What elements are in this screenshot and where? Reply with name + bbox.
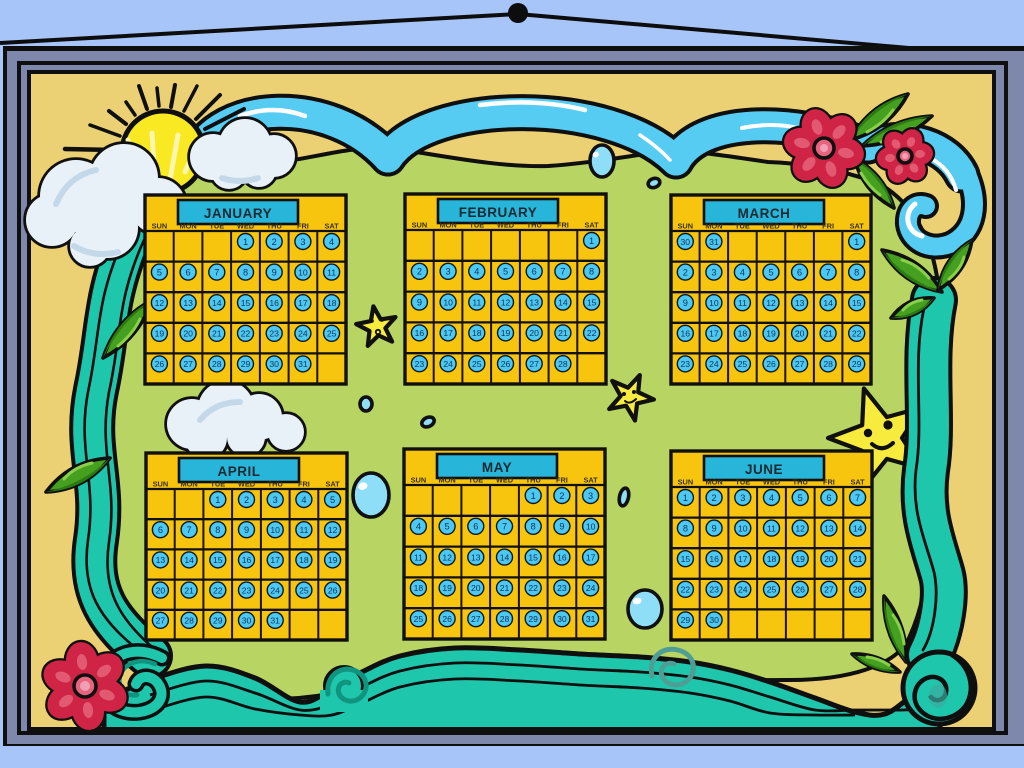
svg-text:13: 13 bbox=[183, 298, 193, 308]
svg-text:22: 22 bbox=[213, 585, 223, 595]
svg-text:23: 23 bbox=[709, 585, 719, 595]
svg-text:15: 15 bbox=[241, 298, 251, 308]
svg-text:28: 28 bbox=[184, 616, 194, 626]
svg-text:FEBRUARY: FEBRUARY bbox=[459, 205, 538, 220]
svg-text:6: 6 bbox=[473, 522, 478, 532]
svg-text:20: 20 bbox=[529, 328, 539, 338]
svg-text:THU: THU bbox=[526, 476, 541, 485]
svg-text:19: 19 bbox=[155, 329, 165, 339]
svg-text:9: 9 bbox=[417, 297, 422, 307]
svg-text:23: 23 bbox=[242, 585, 252, 595]
svg-text:12: 12 bbox=[795, 523, 805, 533]
svg-text:8: 8 bbox=[215, 525, 220, 535]
svg-text:27: 27 bbox=[183, 359, 193, 369]
svg-text:8: 8 bbox=[854, 267, 859, 277]
svg-text:29: 29 bbox=[528, 614, 538, 624]
svg-text:5: 5 bbox=[157, 267, 162, 277]
svg-text:4: 4 bbox=[329, 237, 334, 247]
svg-text:23: 23 bbox=[415, 359, 425, 369]
svg-text:17: 17 bbox=[443, 328, 453, 338]
svg-text:30: 30 bbox=[242, 616, 252, 626]
svg-text:22: 22 bbox=[587, 328, 597, 338]
svg-text:26: 26 bbox=[155, 359, 165, 369]
svg-text:9: 9 bbox=[244, 525, 249, 535]
svg-text:13: 13 bbox=[824, 523, 834, 533]
svg-text:SAT: SAT bbox=[583, 476, 598, 485]
svg-text:SUN: SUN bbox=[677, 222, 693, 231]
svg-text:5: 5 bbox=[330, 495, 335, 505]
svg-text:6: 6 bbox=[532, 267, 537, 277]
svg-text:26: 26 bbox=[328, 585, 338, 595]
svg-text:APRIL: APRIL bbox=[218, 464, 261, 479]
svg-text:12: 12 bbox=[155, 298, 165, 308]
svg-text:15: 15 bbox=[852, 298, 862, 308]
svg-text:WED: WED bbox=[497, 221, 515, 230]
svg-text:7: 7 bbox=[187, 525, 192, 535]
svg-text:27: 27 bbox=[529, 359, 539, 369]
svg-text:27: 27 bbox=[824, 585, 834, 595]
svg-text:FRI: FRI bbox=[557, 221, 569, 230]
svg-text:4: 4 bbox=[474, 267, 479, 277]
svg-text:3: 3 bbox=[588, 491, 593, 501]
svg-text:10: 10 bbox=[586, 522, 596, 532]
svg-text:6: 6 bbox=[797, 267, 802, 277]
svg-text:17: 17 bbox=[270, 555, 280, 565]
svg-text:11: 11 bbox=[738, 298, 747, 308]
svg-text:11: 11 bbox=[299, 525, 308, 535]
svg-text:21: 21 bbox=[558, 328, 568, 338]
svg-text:18: 18 bbox=[767, 554, 777, 564]
svg-text:18: 18 bbox=[414, 583, 424, 593]
svg-text:11: 11 bbox=[327, 267, 336, 277]
svg-text:SUN: SUN bbox=[152, 222, 168, 231]
svg-text:29: 29 bbox=[852, 359, 862, 369]
svg-text:7: 7 bbox=[502, 522, 507, 532]
svg-text:19: 19 bbox=[501, 328, 511, 338]
svg-text:31: 31 bbox=[586, 614, 596, 624]
svg-text:4: 4 bbox=[740, 267, 745, 277]
svg-text:8: 8 bbox=[243, 267, 248, 277]
svg-text:MON: MON bbox=[438, 476, 455, 485]
svg-text:13: 13 bbox=[529, 297, 539, 307]
svg-text:7: 7 bbox=[560, 267, 565, 277]
svg-text:21: 21 bbox=[823, 329, 833, 339]
svg-text:WED: WED bbox=[496, 476, 514, 485]
svg-text:22: 22 bbox=[241, 329, 251, 339]
svg-text:9: 9 bbox=[683, 298, 688, 308]
svg-text:17: 17 bbox=[738, 554, 748, 564]
svg-text:10: 10 bbox=[270, 525, 280, 535]
svg-text:WED: WED bbox=[762, 222, 780, 231]
svg-text:24: 24 bbox=[586, 583, 596, 593]
svg-text:1: 1 bbox=[215, 495, 220, 505]
svg-text:11: 11 bbox=[767, 523, 776, 533]
svg-text:12: 12 bbox=[442, 552, 452, 562]
svg-text:11: 11 bbox=[414, 552, 423, 562]
svg-text:19: 19 bbox=[766, 329, 776, 339]
svg-text:6: 6 bbox=[186, 267, 191, 277]
svg-text:26: 26 bbox=[795, 585, 805, 595]
svg-text:24: 24 bbox=[298, 329, 308, 339]
svg-text:4: 4 bbox=[769, 493, 774, 503]
svg-text:20: 20 bbox=[471, 583, 481, 593]
svg-text:FRI: FRI bbox=[822, 222, 834, 231]
svg-text:9: 9 bbox=[272, 267, 277, 277]
svg-text:13: 13 bbox=[156, 555, 166, 565]
svg-text:WED: WED bbox=[763, 478, 781, 487]
svg-text:27: 27 bbox=[156, 616, 166, 626]
svg-text:10: 10 bbox=[298, 267, 308, 277]
svg-text:25: 25 bbox=[299, 585, 309, 595]
svg-text:26: 26 bbox=[766, 359, 776, 369]
svg-text:2: 2 bbox=[272, 237, 277, 247]
svg-text:25: 25 bbox=[414, 614, 424, 624]
svg-text:18: 18 bbox=[299, 555, 309, 565]
svg-text:SAT: SAT bbox=[584, 221, 599, 230]
svg-text:SUN: SUN bbox=[678, 478, 694, 487]
svg-text:15: 15 bbox=[528, 552, 538, 562]
svg-text:20: 20 bbox=[183, 329, 193, 339]
svg-text:7: 7 bbox=[214, 267, 219, 277]
svg-text:14: 14 bbox=[823, 298, 833, 308]
svg-text:7: 7 bbox=[855, 493, 860, 503]
svg-text:8: 8 bbox=[531, 522, 536, 532]
svg-text:27: 27 bbox=[795, 359, 805, 369]
svg-text:13: 13 bbox=[471, 552, 481, 562]
svg-text:THU: THU bbox=[268, 480, 283, 489]
svg-text:31: 31 bbox=[270, 616, 280, 626]
svg-text:2: 2 bbox=[244, 495, 249, 505]
svg-text:24: 24 bbox=[270, 585, 280, 595]
svg-text:TUE: TUE bbox=[469, 221, 484, 230]
svg-text:16: 16 bbox=[242, 555, 252, 565]
svg-text:9: 9 bbox=[559, 522, 564, 532]
svg-text:27: 27 bbox=[471, 614, 481, 624]
svg-text:29: 29 bbox=[213, 616, 223, 626]
svg-text:28: 28 bbox=[558, 359, 568, 369]
svg-text:31: 31 bbox=[709, 237, 719, 247]
svg-text:19: 19 bbox=[328, 555, 338, 565]
svg-text:16: 16 bbox=[681, 329, 691, 339]
svg-text:3: 3 bbox=[711, 267, 716, 277]
svg-text:SUN: SUN bbox=[412, 221, 428, 230]
svg-text:21: 21 bbox=[853, 554, 863, 564]
svg-text:16: 16 bbox=[557, 552, 567, 562]
svg-text:17: 17 bbox=[298, 298, 308, 308]
svg-text:3: 3 bbox=[273, 495, 278, 505]
svg-text:2: 2 bbox=[712, 493, 717, 503]
svg-text:28: 28 bbox=[853, 585, 863, 595]
svg-text:1: 1 bbox=[531, 491, 536, 501]
svg-text:19: 19 bbox=[795, 554, 805, 564]
svg-text:17: 17 bbox=[586, 552, 596, 562]
svg-text:MON: MON bbox=[705, 222, 722, 231]
svg-text:FRI: FRI bbox=[823, 478, 835, 487]
svg-text:TUE: TUE bbox=[735, 222, 750, 231]
svg-text:29: 29 bbox=[241, 359, 251, 369]
svg-text:21: 21 bbox=[500, 583, 510, 593]
svg-text:20: 20 bbox=[156, 585, 166, 595]
svg-text:16: 16 bbox=[269, 298, 279, 308]
svg-text:WED: WED bbox=[237, 222, 255, 231]
svg-text:TUE: TUE bbox=[210, 480, 225, 489]
svg-text:5: 5 bbox=[768, 267, 773, 277]
svg-text:5: 5 bbox=[503, 267, 508, 277]
svg-text:SUN: SUN bbox=[411, 476, 427, 485]
svg-text:25: 25 bbox=[738, 359, 748, 369]
svg-text:THU: THU bbox=[267, 222, 282, 231]
svg-text:SAT: SAT bbox=[850, 478, 865, 487]
svg-text:19: 19 bbox=[442, 583, 452, 593]
svg-text:2: 2 bbox=[417, 267, 422, 277]
svg-text:4: 4 bbox=[301, 495, 306, 505]
svg-text:14: 14 bbox=[500, 552, 510, 562]
svg-text:20: 20 bbox=[824, 554, 834, 564]
svg-text:24: 24 bbox=[443, 359, 453, 369]
svg-text:23: 23 bbox=[681, 359, 691, 369]
svg-text:THU: THU bbox=[792, 222, 807, 231]
svg-text:29: 29 bbox=[681, 615, 691, 625]
svg-text:2: 2 bbox=[683, 267, 688, 277]
svg-text:16: 16 bbox=[415, 328, 425, 338]
svg-text:26: 26 bbox=[501, 359, 511, 369]
svg-text:2: 2 bbox=[559, 491, 564, 501]
svg-text:12: 12 bbox=[501, 297, 511, 307]
svg-text:14: 14 bbox=[558, 297, 568, 307]
svg-text:MON: MON bbox=[439, 221, 456, 230]
svg-text:1: 1 bbox=[683, 493, 688, 503]
svg-text:23: 23 bbox=[557, 583, 567, 593]
svg-text:1: 1 bbox=[589, 236, 594, 246]
svg-text:3: 3 bbox=[300, 237, 305, 247]
svg-text:MON: MON bbox=[705, 478, 722, 487]
svg-text:28: 28 bbox=[500, 614, 510, 624]
svg-text:22: 22 bbox=[528, 583, 538, 593]
svg-text:18: 18 bbox=[327, 298, 337, 308]
svg-text:MARCH: MARCH bbox=[738, 206, 791, 221]
svg-text:SUN: SUN bbox=[153, 480, 169, 489]
svg-text:30: 30 bbox=[557, 614, 567, 624]
svg-text:11: 11 bbox=[472, 297, 481, 307]
svg-text:18: 18 bbox=[472, 328, 482, 338]
svg-text:15: 15 bbox=[213, 555, 223, 565]
svg-text:TUE: TUE bbox=[735, 478, 750, 487]
svg-text:SAT: SAT bbox=[324, 222, 339, 231]
svg-text:21: 21 bbox=[184, 585, 194, 595]
svg-text:26: 26 bbox=[442, 614, 452, 624]
svg-text:7: 7 bbox=[826, 267, 831, 277]
svg-text:14: 14 bbox=[184, 555, 194, 565]
svg-text:MAY: MAY bbox=[482, 460, 512, 475]
svg-text:28: 28 bbox=[823, 359, 833, 369]
svg-text:13: 13 bbox=[795, 298, 805, 308]
svg-text:6: 6 bbox=[158, 525, 163, 535]
svg-text:23: 23 bbox=[269, 329, 279, 339]
svg-text:TUE: TUE bbox=[468, 476, 483, 485]
svg-text:THU: THU bbox=[793, 478, 808, 487]
svg-text:21: 21 bbox=[212, 329, 222, 339]
svg-text:15: 15 bbox=[587, 297, 597, 307]
svg-text:24: 24 bbox=[709, 359, 719, 369]
svg-text:25: 25 bbox=[327, 329, 337, 339]
svg-text:1: 1 bbox=[854, 237, 859, 247]
svg-text:SAT: SAT bbox=[325, 480, 340, 489]
svg-text:5: 5 bbox=[798, 493, 803, 503]
svg-text:10: 10 bbox=[738, 523, 748, 533]
svg-text:FRI: FRI bbox=[297, 222, 309, 231]
svg-text:28: 28 bbox=[212, 359, 222, 369]
svg-text:3: 3 bbox=[740, 493, 745, 503]
svg-text:24: 24 bbox=[738, 585, 748, 595]
svg-text:31: 31 bbox=[298, 359, 308, 369]
svg-text:25: 25 bbox=[767, 585, 777, 595]
svg-text:30: 30 bbox=[709, 615, 719, 625]
svg-text:20: 20 bbox=[795, 329, 805, 339]
svg-text:MON: MON bbox=[180, 480, 197, 489]
svg-text:15: 15 bbox=[681, 554, 691, 564]
svg-text:5: 5 bbox=[445, 522, 450, 532]
svg-text:1: 1 bbox=[243, 237, 248, 247]
svg-text:9: 9 bbox=[712, 523, 717, 533]
svg-text:18: 18 bbox=[738, 329, 748, 339]
svg-text:JANUARY: JANUARY bbox=[204, 206, 272, 221]
svg-text:17: 17 bbox=[709, 329, 719, 339]
svg-text:22: 22 bbox=[852, 329, 862, 339]
svg-text:30: 30 bbox=[269, 359, 279, 369]
svg-text:14: 14 bbox=[853, 523, 863, 533]
svg-text:JUNE: JUNE bbox=[745, 462, 783, 477]
svg-text:WED: WED bbox=[238, 480, 256, 489]
svg-text:12: 12 bbox=[766, 298, 776, 308]
svg-text:14: 14 bbox=[212, 298, 222, 308]
svg-text:FRI: FRI bbox=[298, 480, 310, 489]
svg-text:MON: MON bbox=[179, 222, 196, 231]
svg-text:THU: THU bbox=[527, 221, 542, 230]
svg-text:30: 30 bbox=[681, 237, 691, 247]
svg-text:10: 10 bbox=[443, 297, 453, 307]
svg-text:12: 12 bbox=[328, 525, 338, 535]
svg-text:10: 10 bbox=[709, 298, 719, 308]
svg-text:FRI: FRI bbox=[556, 476, 568, 485]
svg-text:25: 25 bbox=[472, 359, 482, 369]
svg-text:4: 4 bbox=[416, 522, 421, 532]
svg-text:22: 22 bbox=[681, 585, 691, 595]
svg-text:16: 16 bbox=[709, 554, 719, 564]
svg-text:6: 6 bbox=[826, 493, 831, 503]
svg-text:8: 8 bbox=[589, 267, 594, 277]
svg-text:TUE: TUE bbox=[209, 222, 224, 231]
svg-text:SAT: SAT bbox=[850, 222, 865, 231]
svg-text:8: 8 bbox=[683, 523, 688, 533]
svg-text:3: 3 bbox=[446, 267, 451, 277]
